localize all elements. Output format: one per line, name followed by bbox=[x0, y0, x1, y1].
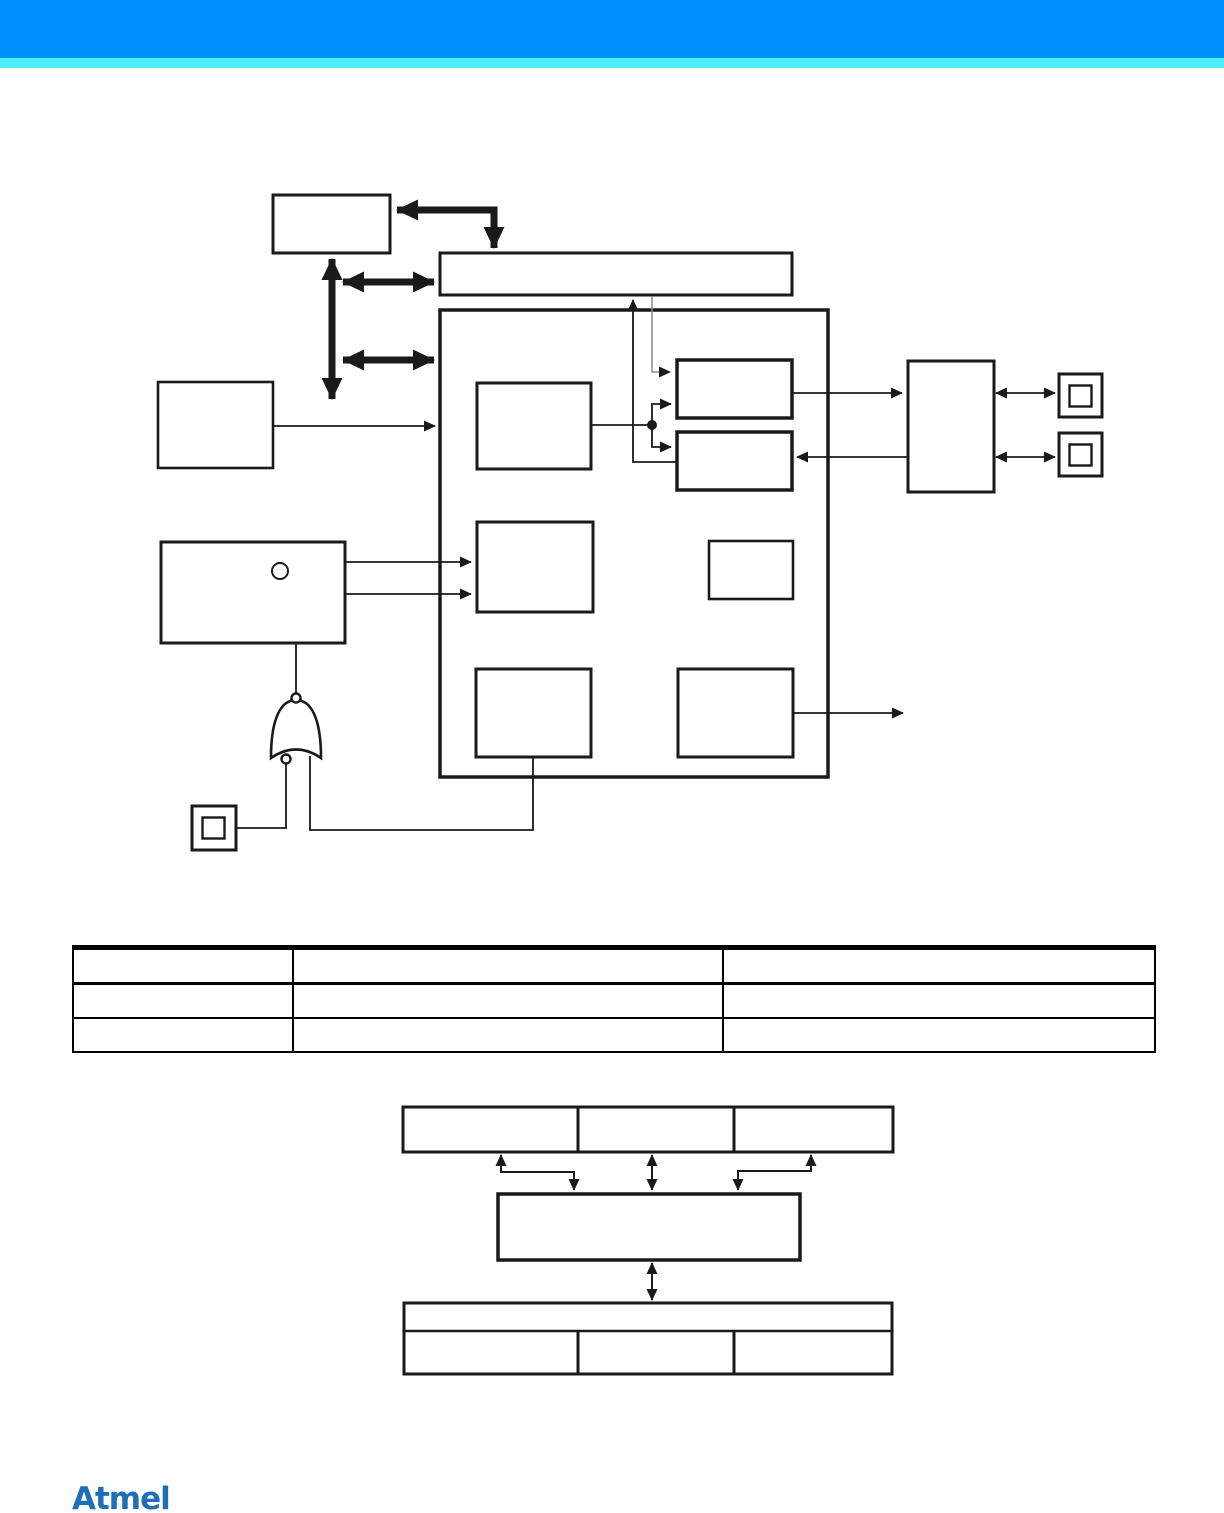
inner-box-row2 bbox=[477, 522, 593, 612]
table-cell bbox=[294, 985, 724, 1017]
table-header-cell bbox=[294, 950, 724, 982]
table-cell bbox=[294, 1019, 724, 1051]
right-io-box bbox=[908, 361, 994, 492]
table-row bbox=[74, 985, 1154, 1019]
gate-output-bubble bbox=[292, 694, 301, 703]
stacked-box-lower bbox=[677, 432, 792, 490]
document-page: Atmel bbox=[0, 0, 1224, 1513]
pin-pad-upper-inner bbox=[1070, 386, 1092, 407]
small-circle-mark bbox=[272, 563, 288, 579]
wide-bar-box bbox=[440, 253, 792, 295]
pin-pad-lower-inner bbox=[1070, 445, 1092, 466]
table-cell bbox=[724, 985, 1154, 1017]
stacked-box-upper bbox=[677, 360, 792, 418]
table-cell bbox=[74, 1019, 294, 1051]
bottom-fig-middle-box bbox=[498, 1194, 800, 1260]
inner-box-row3-right bbox=[678, 669, 793, 757]
specification-table bbox=[72, 945, 1156, 1053]
left-box-with-circle bbox=[161, 542, 345, 643]
inner-box-row3-left bbox=[476, 669, 591, 757]
top-block-diagram bbox=[0, 0, 1224, 900]
left-middle-box bbox=[158, 382, 273, 468]
table-header-cell bbox=[724, 950, 1154, 982]
thick-arrow-topbox-to-bar bbox=[397, 210, 494, 248]
table-cell bbox=[724, 1019, 1154, 1051]
inner-box-row1 bbox=[477, 383, 591, 469]
small-box-row2 bbox=[709, 541, 793, 599]
pin-pad-bottomleft-inner bbox=[203, 818, 225, 839]
bottom-block-diagram bbox=[0, 1090, 1224, 1390]
line-pin-to-gate-input-left bbox=[236, 764, 286, 828]
table-row bbox=[74, 1019, 1154, 1051]
bottom-fig-bottom-band bbox=[404, 1303, 892, 1374]
table-header-row bbox=[74, 950, 1154, 985]
atmel-logo: Atmel bbox=[72, 1481, 170, 1513]
table-cell bbox=[74, 985, 294, 1017]
bottom-fig-top-row bbox=[403, 1107, 893, 1152]
zigzag-arrow-right bbox=[738, 1155, 811, 1190]
top-left-box bbox=[273, 195, 390, 253]
zigzag-arrow-left bbox=[501, 1155, 574, 1190]
table-header-cell bbox=[74, 950, 294, 982]
gate-input-bubble bbox=[282, 755, 291, 764]
nor-gate bbox=[271, 700, 321, 758]
